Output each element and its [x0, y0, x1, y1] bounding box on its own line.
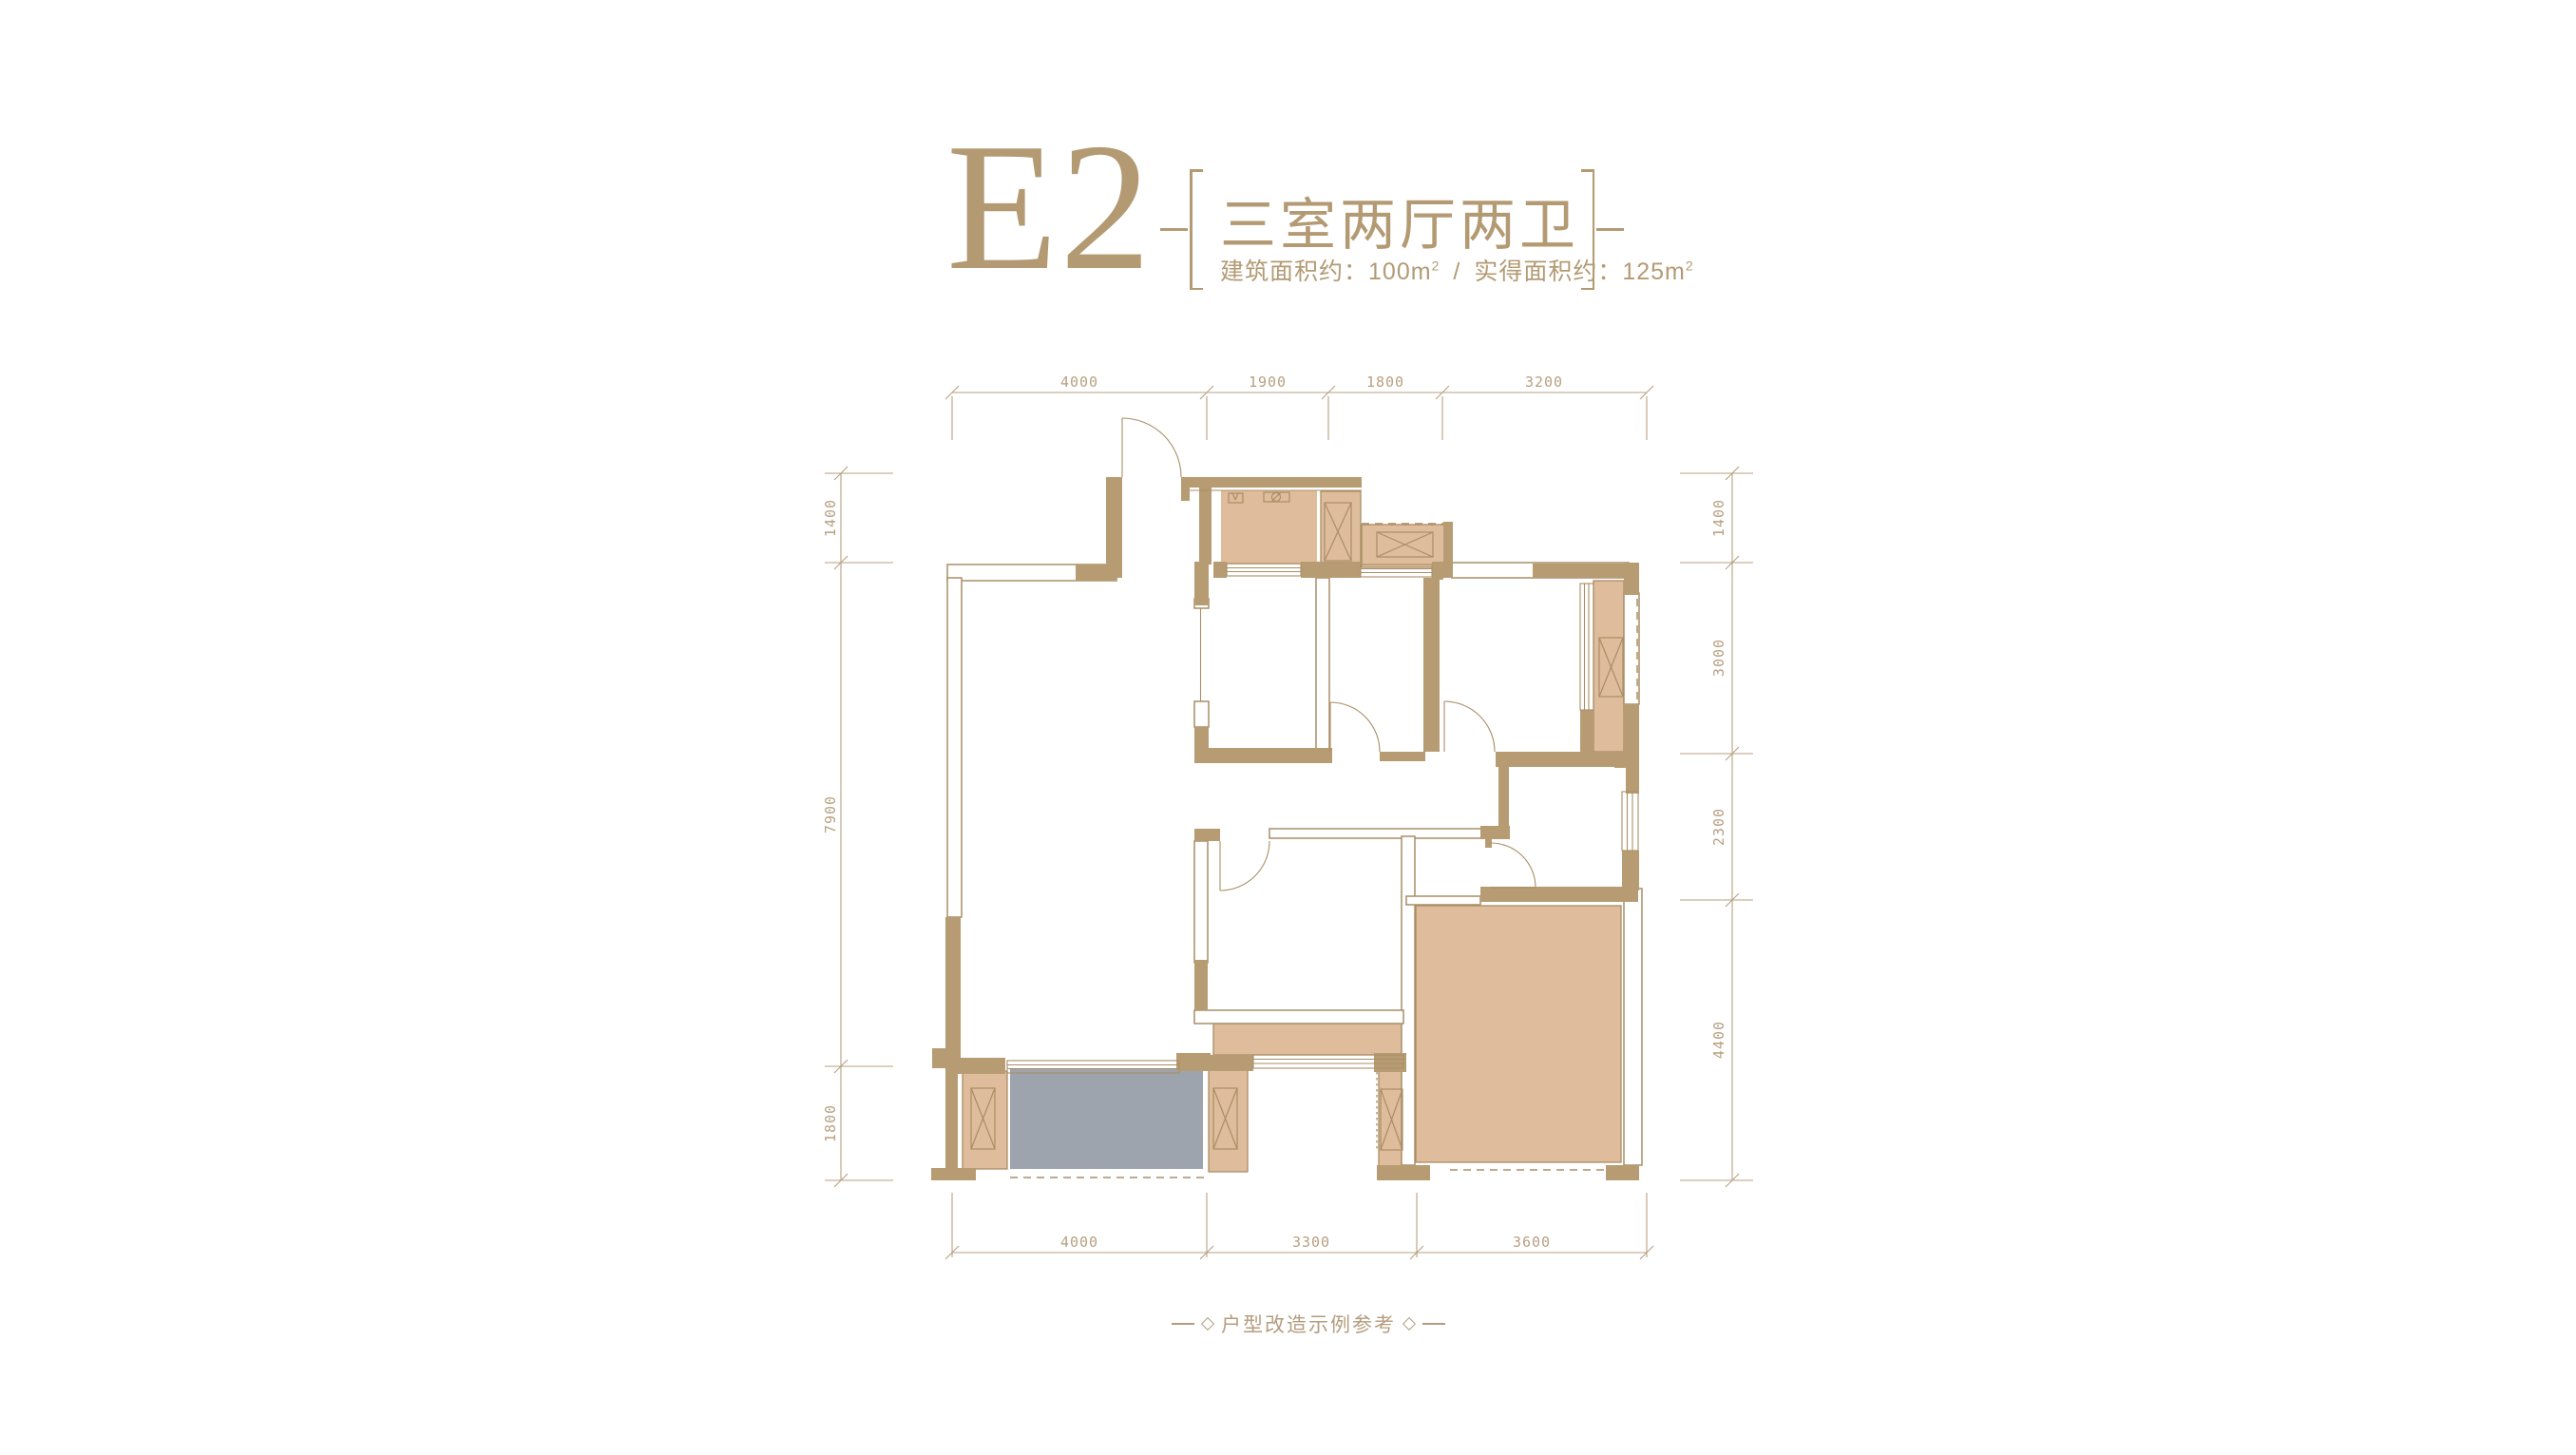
dimension-bottom: 4000 3300 3600 — [945, 1193, 1653, 1259]
wall-bath1-left — [1316, 578, 1329, 749]
roomc-door — [1220, 841, 1269, 890]
wall-top-right-solid — [1533, 564, 1629, 578]
wall-left-cavity — [947, 578, 962, 917]
balcony-bl-corner — [931, 1168, 976, 1180]
balcony-platform-left-fill — [963, 1071, 1007, 1169]
floor-plan-canvas: 4000 1900 1800 3200 4000 3300 3600 1400 … — [0, 0, 2576, 1455]
wall-left-solid — [945, 917, 961, 1067]
wall-corridor-south — [1209, 748, 1328, 763]
bath2-door — [1491, 843, 1536, 888]
dim-bottom-3: 3600 — [1513, 1234, 1551, 1251]
window-kitchen-sill — [1227, 564, 1301, 576]
wall-platform-right — [1443, 522, 1453, 578]
wall-roomc-left — [1194, 841, 1208, 963]
bath1-door — [1330, 702, 1380, 752]
kitchen-sill-left — [1213, 562, 1227, 578]
roomc-left-solid — [1194, 960, 1208, 1010]
dim-left-3: 1800 — [822, 1104, 839, 1142]
wall-corridor-horiz — [1480, 826, 1510, 839]
balcony-tr-chunk — [1176, 1053, 1211, 1071]
dim-right-4: 4400 — [1710, 1021, 1727, 1059]
wall-bed2-bottom — [1496, 752, 1638, 767]
wall-right-seg2 — [1624, 704, 1639, 754]
bed2-top-jamb — [1432, 562, 1443, 580]
dim-left-2: 7900 — [822, 795, 839, 833]
dim-bottom-2: 3300 — [1292, 1234, 1330, 1251]
wall-kitchen-top — [1181, 477, 1362, 488]
strip-top-chunk — [1374, 1053, 1406, 1072]
dim-left-1: 1400 — [822, 499, 839, 537]
kitchen-sill-right — [1301, 562, 1361, 578]
dim-top-3: 1800 — [1366, 373, 1404, 391]
wall-right-seg3 — [1626, 768, 1639, 794]
passage-pier — [1209, 1055, 1253, 1071]
dim-right-2: 3000 — [1710, 639, 1727, 677]
master-entry-opening — [1406, 896, 1480, 905]
master-bottom-left-corner — [1377, 1165, 1430, 1180]
dim-right-1: 1400 — [1710, 499, 1727, 537]
balcony-platform-right-fill — [1209, 1066, 1248, 1172]
rooma-wall-lower — [1194, 727, 1209, 763]
entry-wall-chunk — [1106, 477, 1122, 578]
balcony-tl-chunk — [932, 1048, 958, 1068]
wall-bath1-bottom — [1380, 752, 1425, 761]
caption-line-left-icon — [1172, 1323, 1194, 1325]
floor-plan-page: { "title": { "unit": "E2", "layout_name"… — [0, 0, 2576, 1455]
bath2-door-stub — [1485, 839, 1492, 848]
dimension-right: 1400 3000 2300 4400 — [1680, 467, 1753, 1187]
caption-line-right-icon — [1422, 1323, 1445, 1325]
caption-diamond-right-icon — [1402, 1317, 1416, 1331]
wall-right-lower-cavity — [1624, 889, 1642, 1165]
wall-roomc-top — [1269, 829, 1482, 838]
master-bottom-right-corner — [1606, 1165, 1639, 1180]
entry-door — [1122, 418, 1181, 477]
caption-text: 户型改造示例参考 — [1221, 1310, 1396, 1338]
dimension-left: 1400 7900 1800 — [822, 467, 893, 1187]
wall-corridor-vert — [1498, 755, 1509, 831]
caption-diamond-left-icon — [1201, 1317, 1214, 1331]
dim-top-1: 4000 — [1060, 373, 1098, 391]
entry-jamb — [1181, 477, 1190, 501]
wall-bath1-bed2-divider — [1423, 578, 1440, 752]
dim-top-2: 1900 — [1249, 373, 1287, 391]
dimension-top: 4000 1900 1800 3200 — [945, 373, 1653, 440]
rooma-wall-upper — [1194, 562, 1209, 605]
dim-top-4: 3200 — [1525, 373, 1563, 391]
balcony-highlight-zone — [1010, 1068, 1203, 1169]
rooma-door-jamb-bottom — [1194, 701, 1209, 727]
balcony-left-wall — [945, 1067, 958, 1172]
bed2-right-pier — [1580, 710, 1593, 752]
bed2-door — [1444, 701, 1495, 752]
roomc-door-jamb — [1194, 829, 1220, 841]
wall-right-upper-cavity — [1624, 593, 1639, 704]
window-bath2-right — [1622, 792, 1638, 851]
master-bedroom-fill — [1416, 906, 1621, 1162]
balcony-top-wall — [958, 1058, 1005, 1074]
dim-right-3: 2300 — [1710, 808, 1727, 846]
ac-platform-right-fill — [1593, 581, 1624, 752]
caption-row: 户型改造示例参考 — [1023, 1310, 1593, 1338]
dim-bottom-1: 4000 — [1060, 1234, 1098, 1251]
window-bed2-right — [1580, 584, 1593, 710]
wall-master-top — [1480, 887, 1638, 902]
wall-right-seg1 — [1624, 563, 1639, 595]
passage-strip-fill — [1213, 1024, 1403, 1055]
wall-roomc-bottom — [1194, 1010, 1403, 1024]
wall-right-seg4 — [1622, 851, 1639, 890]
bath1-door-stub — [1324, 748, 1332, 763]
wall-master-left — [1402, 836, 1415, 1165]
wall-vestibule-divider — [1199, 487, 1212, 565]
